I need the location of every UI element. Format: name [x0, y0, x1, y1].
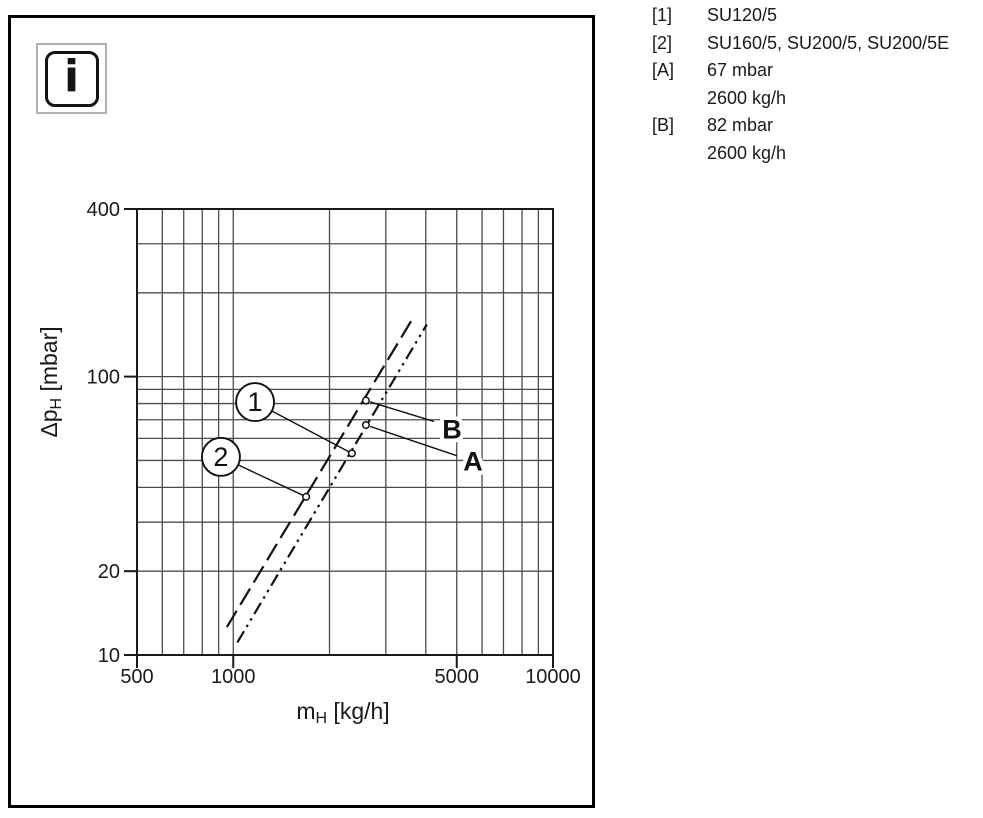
- legend-row: [A]67 mbar: [652, 57, 949, 85]
- legend-key: [B]: [652, 112, 707, 140]
- x-tick-label: 1000: [211, 666, 256, 688]
- x-tick-label: 5000: [434, 666, 479, 688]
- x-tick-label: 500: [120, 666, 153, 688]
- curve-point-marker: [349, 450, 356, 457]
- legend-value: 67 mbar: [707, 57, 773, 85]
- y-axis-title: ΔpH [mbar]: [36, 326, 65, 437]
- point-marker-B: [363, 397, 370, 404]
- legend-value: SU160/5, SU200/5, SU200/5E: [707, 30, 949, 58]
- manual-page: i 50010005000100004001002010mH [kg/h]ΔpH…: [0, 0, 983, 818]
- plot-border: [137, 209, 553, 655]
- legend-row: 2600 kg/h: [652, 85, 949, 113]
- y-tick-label: 10: [98, 645, 120, 667]
- y-tick-label: 400: [87, 199, 120, 221]
- legend-value: 82 mbar: [707, 112, 773, 140]
- curve-1: [237, 324, 426, 642]
- callout-number-1: 1: [248, 387, 263, 417]
- legend-row: [B]82 mbar: [652, 112, 949, 140]
- legend-key: [A]: [652, 57, 707, 85]
- legend-row: [2]SU160/5, SU200/5, SU200/5E: [652, 30, 949, 58]
- legend-key: [652, 140, 707, 168]
- y-tick-label: 100: [87, 367, 120, 389]
- callout-number-2: 2: [213, 442, 228, 472]
- legend-row: [1]SU120/5: [652, 2, 949, 30]
- point-marker-A: [363, 422, 370, 429]
- legend-key: [1]: [652, 2, 707, 30]
- point-label-B: B: [442, 415, 462, 445]
- curve-point-marker: [303, 494, 310, 501]
- y-tick-label: 20: [98, 561, 120, 583]
- point-leader-B: [370, 402, 434, 422]
- x-axis-title: mH [kg/h]: [296, 698, 389, 727]
- legend-key: [652, 85, 707, 113]
- x-tick-label: 10000: [525, 666, 581, 688]
- legend-key: [2]: [652, 30, 707, 58]
- callout-leader-2: [238, 465, 306, 497]
- point-label-A: A: [463, 447, 483, 477]
- legend-row: 2600 kg/h: [652, 140, 949, 168]
- legend-value: SU120/5: [707, 2, 777, 30]
- legend-value: 2600 kg/h: [707, 85, 786, 113]
- callout-leader-1: [272, 411, 352, 453]
- legend-value: 2600 kg/h: [707, 140, 786, 168]
- legend: [1]SU120/5[2]SU160/5, SU200/5, SU200/5E[…: [652, 2, 949, 167]
